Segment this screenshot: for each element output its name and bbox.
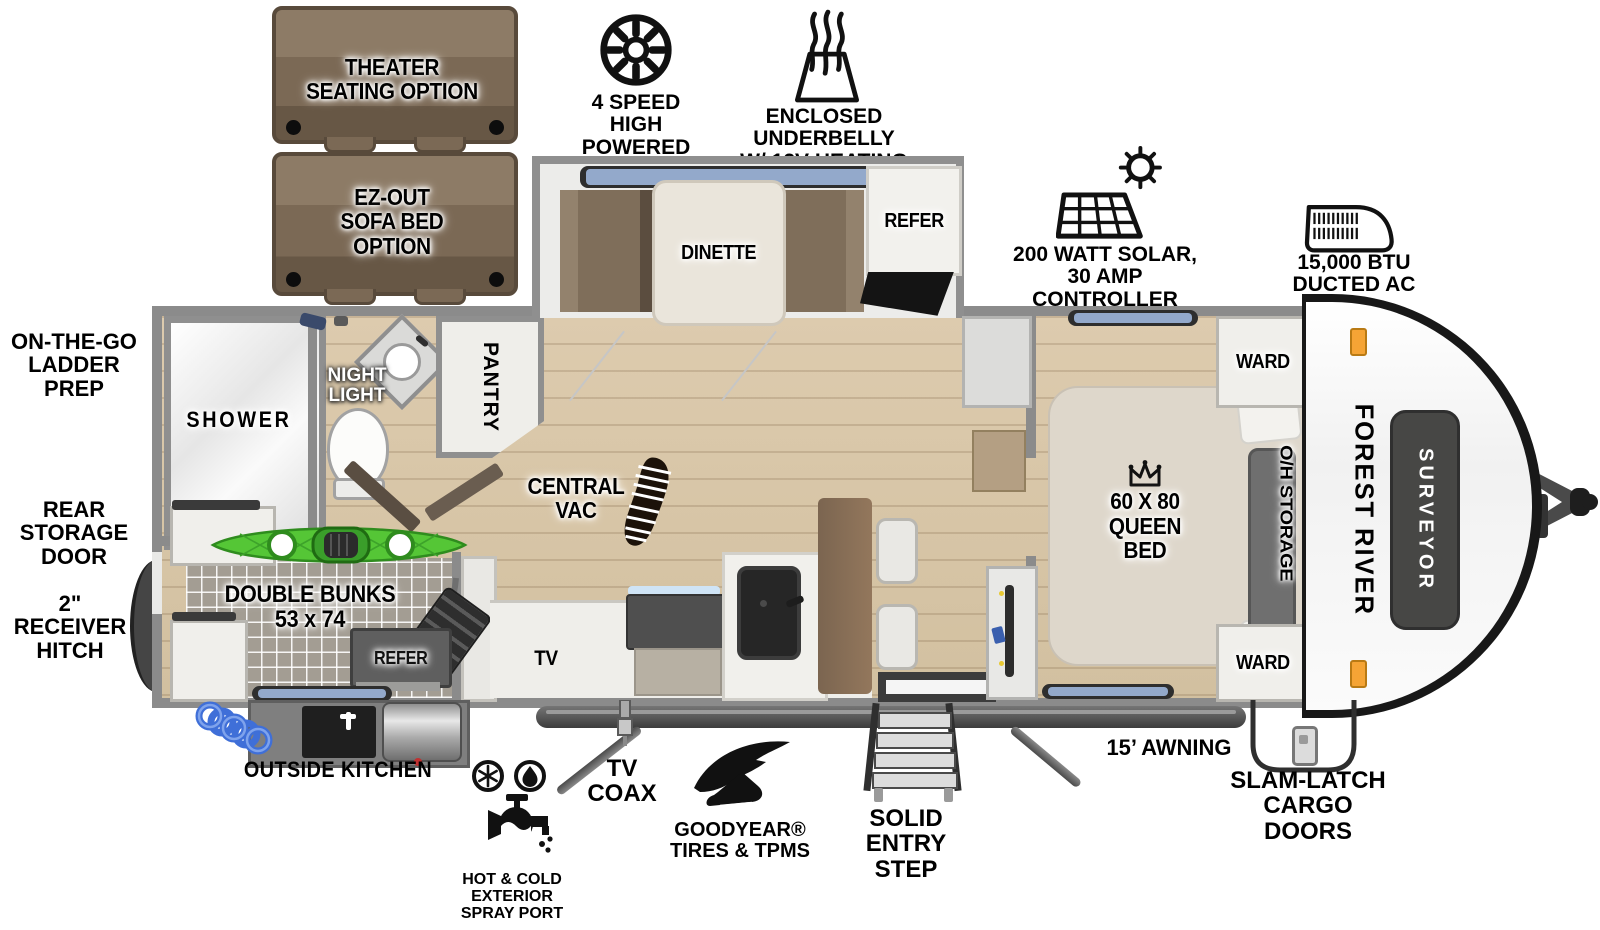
double-bunks-label: DOUBLE BUNKS 53 x 74 bbox=[220, 582, 400, 633]
coax-connector-icon bbox=[612, 700, 638, 750]
outside-kitchen-label: OUTSIDE KITCHEN bbox=[243, 758, 434, 781]
slam-latch-icon bbox=[1292, 726, 1318, 766]
kayak bbox=[210, 518, 468, 572]
queen-bed-label: 60 X 80 QUEEN BED bbox=[1087, 489, 1204, 563]
step bbox=[872, 772, 958, 789]
latch-button bbox=[1299, 735, 1308, 744]
bunk-rail bbox=[172, 500, 260, 510]
step-foot bbox=[944, 788, 953, 802]
ward-label: WARD bbox=[1236, 652, 1290, 675]
ward-label: WARD bbox=[1236, 351, 1290, 374]
theater-seating-label: THEATER SEATING OPTION bbox=[293, 55, 491, 104]
bench-backrest bbox=[560, 190, 578, 312]
rear-storage-door-label: REAR STORAGE DOOR bbox=[0, 498, 148, 568]
ducted-ac-label: 15,000 BTU DUCTED AC bbox=[1282, 252, 1426, 297]
sofa-foot bbox=[414, 289, 466, 305]
bed-label-group: 60 X 80 QUEEN BED bbox=[1080, 456, 1210, 566]
night-light-label: NIGHT LIGHT bbox=[312, 366, 402, 406]
sofa-cupholder-icon bbox=[286, 120, 301, 135]
sofa-foot bbox=[414, 137, 466, 153]
hall-cabinet bbox=[962, 316, 1032, 408]
shower-label: SHOWER bbox=[175, 408, 303, 431]
forest-river-logo: FOREST RIVER bbox=[1348, 404, 1377, 616]
refer-label: REFER bbox=[884, 210, 944, 233]
awning-arm-right bbox=[1009, 725, 1082, 788]
sofa-foot bbox=[324, 137, 376, 153]
cargo-doors-label: SLAM-LATCH CARGO DOORS bbox=[1220, 768, 1396, 844]
tv-led bbox=[999, 591, 1004, 596]
bunk-refer-label: REFER bbox=[374, 648, 428, 669]
spray-port-label: HOT & COLD EXTERIOR SPRAY PORT bbox=[428, 872, 596, 923]
model-badge: SURVEYOR bbox=[1390, 410, 1460, 630]
dinette-bench-left bbox=[560, 190, 656, 312]
wardrobe-front: WARD bbox=[1216, 316, 1310, 408]
stool bbox=[876, 604, 918, 670]
surveyor-logo: SURVEYOR bbox=[1414, 448, 1437, 592]
step-foot bbox=[874, 788, 883, 802]
tv-led bbox=[999, 661, 1004, 666]
bedroom-window-bottom bbox=[1042, 684, 1174, 699]
stove bbox=[626, 594, 726, 650]
shower-wall bbox=[308, 316, 317, 538]
central-vac-label: CENTRAL VAC bbox=[522, 474, 630, 523]
towel-hook bbox=[334, 316, 348, 326]
dinette-table: DINETTE bbox=[652, 180, 786, 326]
rear-storage-door-opening bbox=[152, 552, 162, 614]
sofa-bed-label: EZ-OUT SOFA BED OPTION bbox=[302, 185, 482, 258]
solar-panel-icon bbox=[1056, 146, 1164, 242]
marker-light bbox=[1350, 328, 1367, 356]
window-glass bbox=[1074, 313, 1192, 323]
window-glass bbox=[258, 689, 386, 698]
outside-faucet-icon bbox=[346, 712, 351, 730]
coiled-hose bbox=[192, 698, 282, 764]
stool bbox=[876, 518, 918, 584]
step bbox=[874, 752, 956, 769]
pantry-label: PANTRY bbox=[478, 342, 502, 432]
bath-fan-icon bbox=[598, 12, 674, 88]
step bbox=[876, 732, 954, 749]
wardrobe-rear: WARD bbox=[1216, 624, 1310, 702]
rv-floorplan-diagram: THEATER SEATING OPTION EZ-OUT SOFA BED O… bbox=[0, 0, 1600, 930]
tv-coax-label: TV COAX bbox=[582, 756, 662, 807]
goodyear-label: GOODYEAR® TIRES & TPMS bbox=[660, 820, 820, 862]
bench-backrest bbox=[846, 190, 864, 312]
sofa-cupholder-icon bbox=[489, 120, 504, 135]
crown-icon bbox=[1125, 459, 1165, 489]
bedroom-window-top bbox=[1068, 310, 1198, 326]
awning-label: 15’ AWNING bbox=[1094, 736, 1244, 759]
window-glass bbox=[1048, 687, 1168, 696]
spray-port-icon bbox=[460, 758, 564, 862]
tv-label: TV bbox=[519, 648, 573, 670]
ac-unit-icon bbox=[1300, 194, 1406, 256]
entry-step-label: SOLID ENTRY STEP bbox=[828, 806, 984, 882]
step bbox=[878, 712, 952, 729]
oh-storage-label: O/H STORAGE bbox=[1275, 445, 1296, 581]
marker-light bbox=[1350, 660, 1367, 688]
manufacturer-logo-box: FOREST RIVER bbox=[1344, 380, 1382, 640]
heating-pads-icon bbox=[784, 8, 870, 106]
oh-storage-label-box: O/H STORAGE bbox=[1266, 408, 1304, 618]
receiver-hitch-label: 2" RECEIVER HITCH bbox=[0, 592, 140, 662]
decal bbox=[991, 626, 1006, 644]
kitchen-sink bbox=[737, 566, 801, 660]
bedroom-tv bbox=[1005, 585, 1014, 677]
hall-shelf bbox=[972, 430, 1026, 492]
ladder-prep-label: ON-THE-GO LADDER PREP bbox=[0, 330, 148, 400]
sink-drain bbox=[760, 600, 767, 607]
oven bbox=[634, 648, 722, 696]
entry-door-threshold bbox=[878, 672, 996, 702]
outside-kitchen-griddle bbox=[302, 706, 376, 758]
sofa-cupholder-icon bbox=[489, 272, 504, 287]
kitchen-island bbox=[818, 498, 872, 694]
refrigerator: REFER bbox=[866, 166, 962, 276]
sofa-foot bbox=[324, 289, 376, 305]
outside-kitchen-refer: REFER bbox=[350, 628, 452, 688]
sofa-cupholder-icon bbox=[286, 272, 301, 287]
tv-panel bbox=[986, 566, 1038, 700]
outside-kitchen-tank bbox=[382, 702, 462, 762]
goodyear-wingfoot-icon bbox=[690, 734, 794, 820]
dinette-label: DINETTE bbox=[681, 242, 756, 265]
